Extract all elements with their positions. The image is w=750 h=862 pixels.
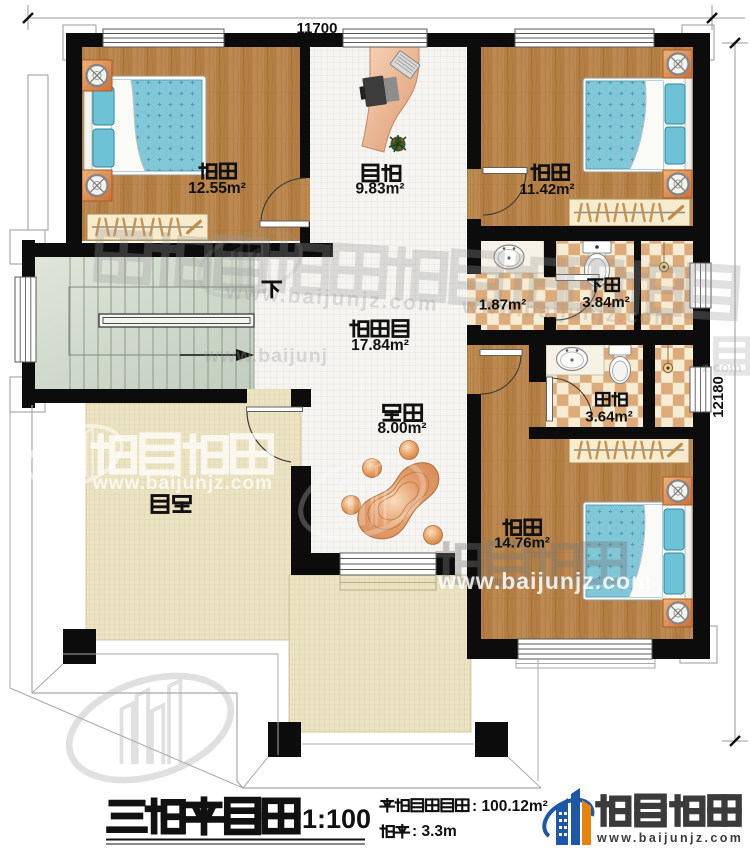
svg-text:11700: 11700 (297, 20, 338, 37)
svg-text:www.baijunjz.com: www.baijunjz.com (437, 568, 653, 594)
svg-text:z.com: z.com (702, 359, 742, 375)
svg-text:www.baijunjz.com: www.baijunjz.com (92, 473, 273, 494)
svg-text:12180: 12180 (710, 376, 727, 418)
svg-text:3.64m²: 3.64m² (585, 409, 633, 426)
svg-text:3.84m²: 3.84m² (582, 294, 630, 311)
svg-text:17.84m²: 17.84m² (351, 337, 409, 354)
svg-text:9.83m²: 9.83m² (355, 181, 404, 198)
svg-text:1.87m²: 1.87m² (479, 297, 527, 314)
svg-text:www.baijunj: www.baijunj (203, 345, 328, 367)
svg-text:11.42m²: 11.42m² (519, 181, 574, 198)
svg-text:1:100: 1:100 (302, 804, 371, 834)
svg-text:14.76m²: 14.76m² (494, 535, 550, 552)
svg-text:: 3.3m: : 3.3m (412, 823, 457, 840)
svg-text:: 100.12m²: : 100.12m² (472, 798, 548, 815)
svg-text:8.00m²: 8.00m² (377, 420, 426, 437)
svg-text:www.baijunjz.com: www.baijunjz.com (596, 831, 743, 845)
svg-text:12.55m²: 12.55m² (188, 180, 246, 197)
